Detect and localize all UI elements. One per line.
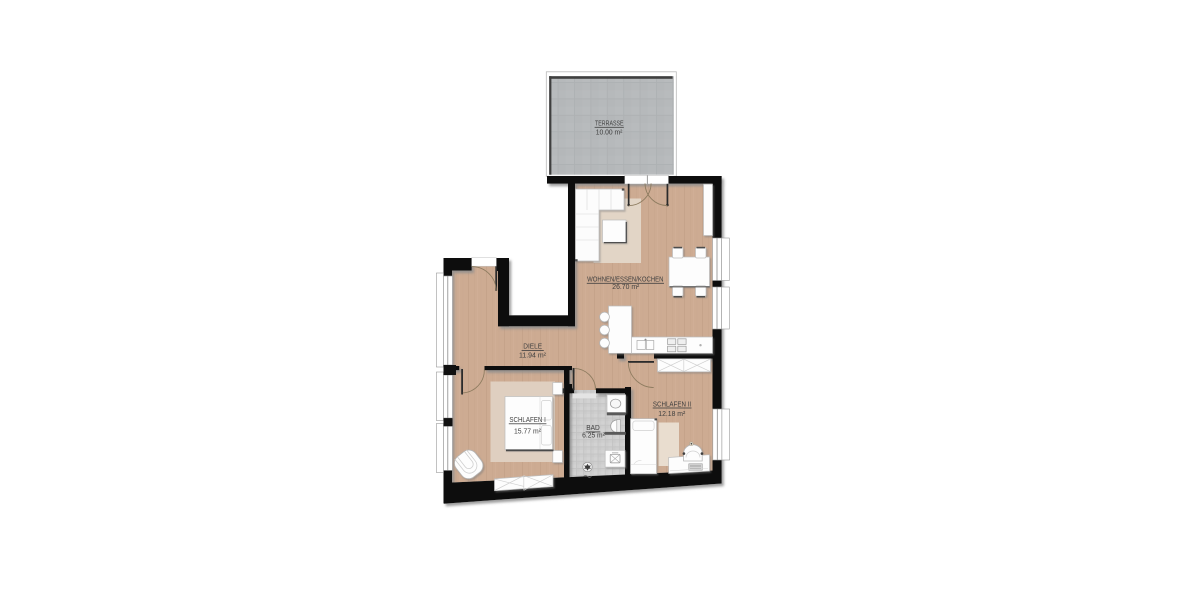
svg-text:11.94 m²: 11.94 m² bbox=[519, 353, 547, 360]
svg-text:6.25 m²: 6.25 m² bbox=[582, 433, 605, 440]
svg-text:SCHLAFEN II: SCHLAFEN II bbox=[653, 399, 691, 408]
svg-text:10.00 m²: 10.00 m² bbox=[596, 129, 623, 136]
svg-text:SCHLAFEN I: SCHLAFEN I bbox=[509, 415, 545, 424]
svg-text:DIELE: DIELE bbox=[523, 342, 542, 351]
svg-text:WOHNEN/ESSEN/KOCHEN: WOHNEN/ESSEN/KOCHEN bbox=[587, 275, 663, 284]
svg-text:BAD: BAD bbox=[586, 423, 600, 432]
svg-text:TERRASSE: TERRASSE bbox=[595, 119, 624, 128]
svg-text:26.70 m²: 26.70 m² bbox=[612, 284, 640, 291]
svg-text:15.77 m²: 15.77 m² bbox=[514, 428, 542, 435]
svg-text:12.18 m²: 12.18 m² bbox=[658, 411, 686, 418]
